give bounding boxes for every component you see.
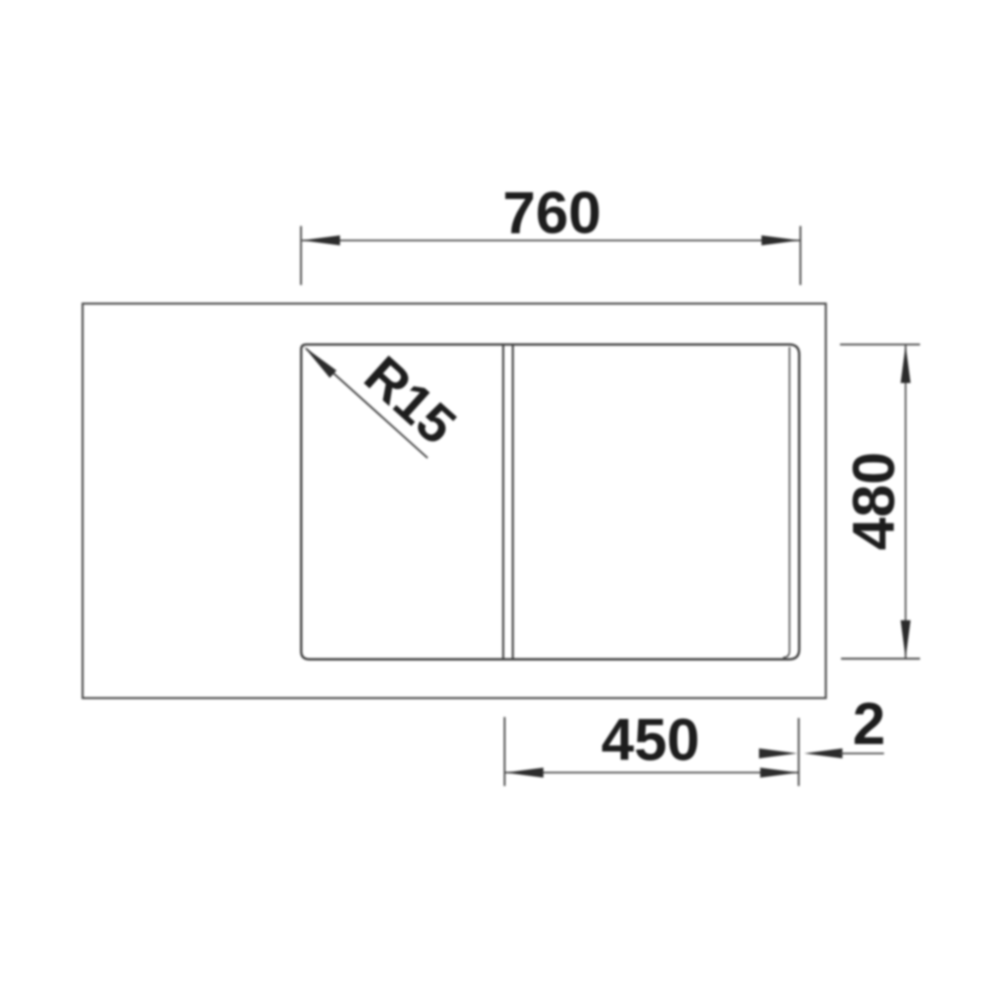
svg-text:760: 760	[503, 180, 601, 246]
svg-text:450: 450	[601, 707, 699, 773]
svg-text:480: 480	[841, 452, 907, 550]
svg-text:2: 2	[853, 691, 886, 757]
